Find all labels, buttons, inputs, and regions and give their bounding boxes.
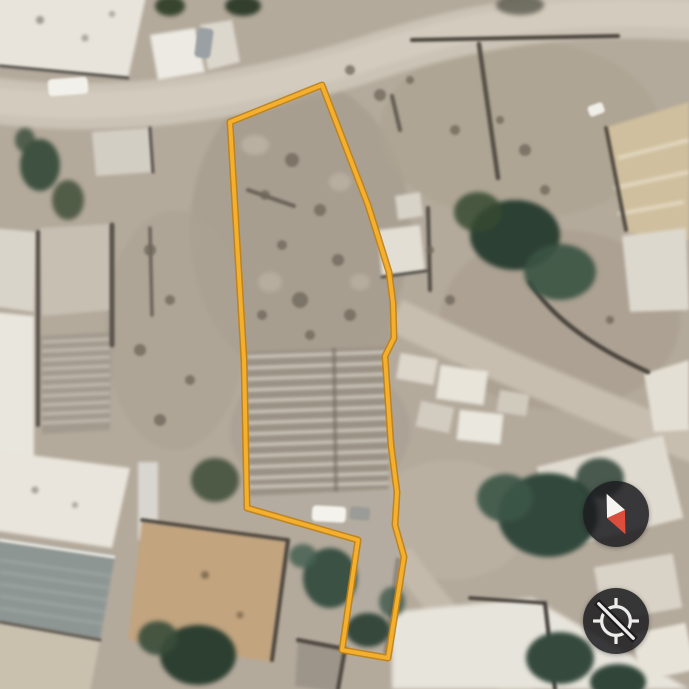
- car: [312, 505, 347, 523]
- my-location-button[interactable]: [583, 588, 649, 654]
- compass-icon: [597, 490, 635, 538]
- satellite-imagery: [0, 0, 689, 689]
- location-disabled-icon: [593, 598, 639, 644]
- car: [47, 77, 88, 97]
- car: [349, 506, 370, 521]
- satellite-map[interactable]: [0, 0, 689, 689]
- compass-button[interactable]: [583, 481, 649, 547]
